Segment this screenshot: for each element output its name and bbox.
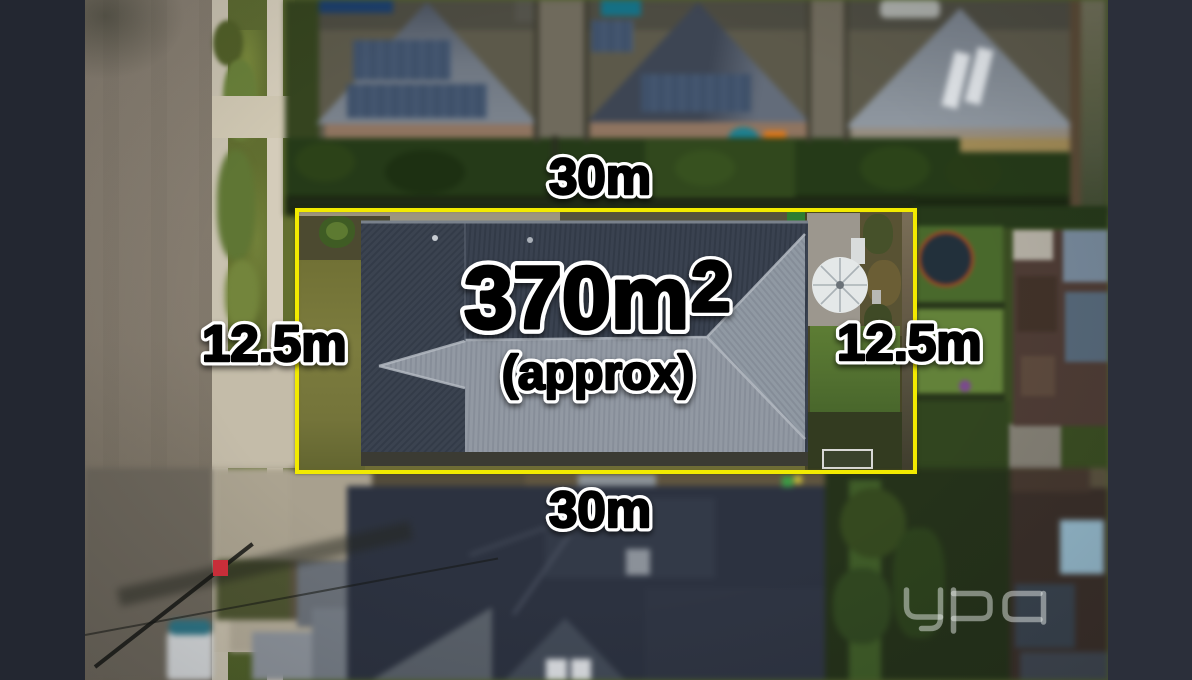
svg-text:2: 2 bbox=[691, 248, 731, 327]
svg-text:(approx): (approx) bbox=[502, 347, 694, 400]
svg-text:30m: 30m bbox=[549, 481, 651, 538]
svg-text:12.5m: 12.5m bbox=[837, 314, 982, 371]
svg-text:12.5m: 12.5m bbox=[202, 315, 347, 372]
svg-text:30m: 30m bbox=[549, 148, 651, 205]
svg-text:370m: 370m bbox=[464, 248, 689, 347]
